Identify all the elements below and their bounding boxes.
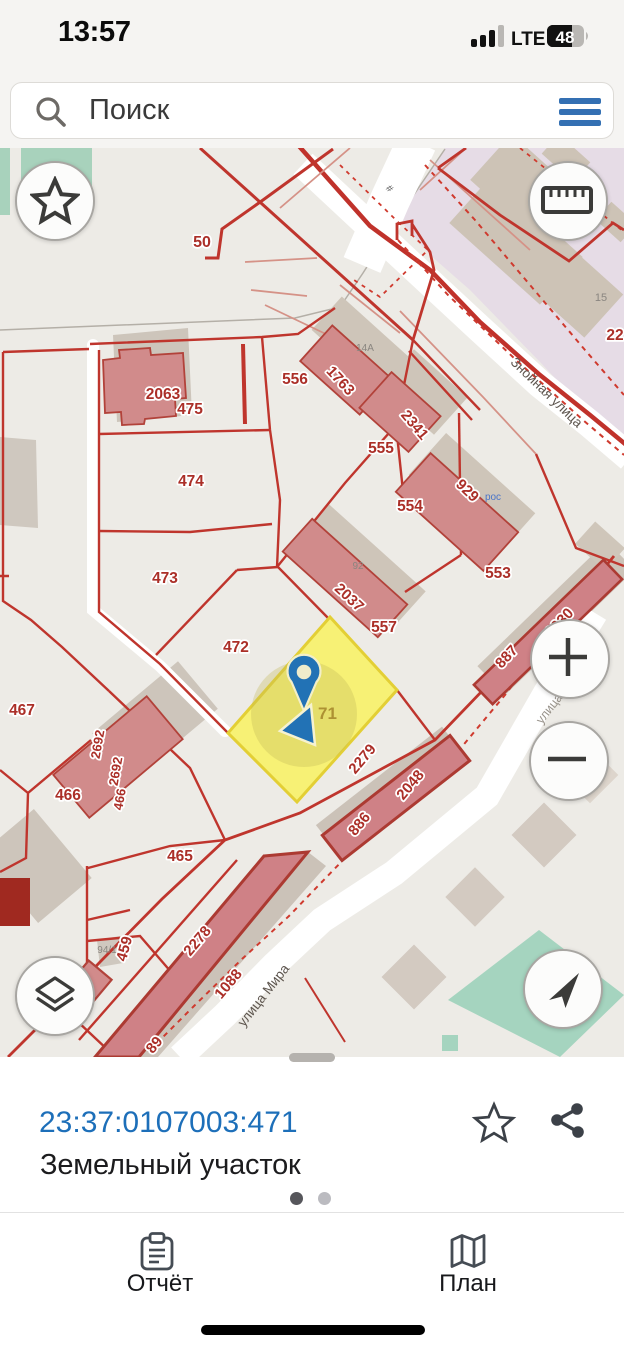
svg-text:473: 473 <box>152 570 178 587</box>
svg-text:556: 556 <box>282 371 308 388</box>
svg-text:474: 474 <box>178 473 204 490</box>
svg-text:50: 50 <box>193 234 211 251</box>
svg-text:466: 466 <box>55 787 81 804</box>
svg-text:рос: рос <box>485 492 501 503</box>
svg-text:557: 557 <box>371 619 397 636</box>
svg-text:15: 15 <box>595 292 607 304</box>
svg-text:553: 553 <box>485 565 511 582</box>
svg-text:LTE: LTE <box>511 29 545 50</box>
svg-text:2063: 2063 <box>146 386 181 403</box>
svg-text:94/1: 94/1 <box>97 945 117 956</box>
svg-text:14A: 14A <box>356 343 374 354</box>
svg-text:22: 22 <box>606 327 623 344</box>
svg-text:48: 48 <box>556 28 575 47</box>
svg-text:465: 465 <box>167 848 193 865</box>
svg-text:472: 472 <box>223 639 249 656</box>
svg-text:555: 555 <box>368 440 394 457</box>
svg-text:475: 475 <box>177 401 203 418</box>
svg-text:554: 554 <box>397 498 423 515</box>
svg-text:71: 71 <box>318 704 337 723</box>
svg-text:467: 467 <box>9 702 35 719</box>
svg-text:92: 92 <box>352 561 364 572</box>
